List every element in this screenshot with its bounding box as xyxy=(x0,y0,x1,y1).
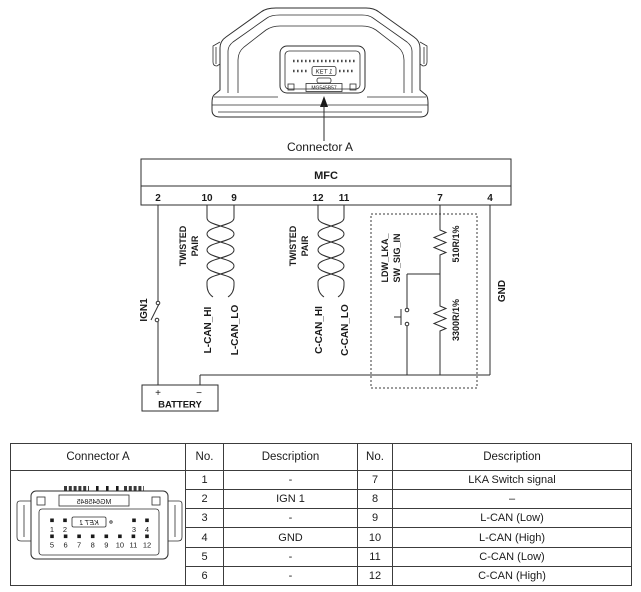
cell-desc: LKA Switch signal xyxy=(393,471,632,490)
table-row: MG645845 KET 1 xyxy=(11,471,632,490)
ccan-lo-label: C-CAN_LO xyxy=(340,304,351,356)
pin-number-9: 9 xyxy=(231,193,237,204)
resistor-510-symbol xyxy=(434,227,446,258)
cell-no: 11 xyxy=(358,547,393,566)
switch-lever xyxy=(151,304,159,320)
connector-drawing-cell: MG645845 KET 1 xyxy=(11,471,186,586)
header-description-left: Description xyxy=(224,444,358,471)
pin-label-8: 8 xyxy=(90,541,94,550)
resistor-3300-symbol xyxy=(434,303,446,334)
twisted-pair-label-line1: TWISTED xyxy=(178,225,188,266)
connector-pinout-table: Connector A No. Description No. Descript… xyxy=(10,443,632,586)
cell-no: 12 xyxy=(358,566,393,585)
twisted-pair-label-line1: TWISTED xyxy=(288,225,298,266)
cell-no: 4 xyxy=(186,528,224,547)
header-connector-a: Connector A xyxy=(11,444,186,471)
twisted-pair-ccan: TWISTED PAIR C-CAN_HI C-CAN_LO xyxy=(288,205,351,356)
pin-square xyxy=(118,535,122,539)
pin-square xyxy=(90,535,94,539)
figure-caption: Connector A xyxy=(287,140,353,154)
gnd-circuit: GND xyxy=(490,205,508,375)
cell-no: 8 xyxy=(358,490,393,509)
pin-label-2: 2 xyxy=(62,525,66,534)
battery-circuit: + − BATTERY xyxy=(142,375,490,411)
connector-a-drawing: MG645845 KET 1 xyxy=(12,471,185,582)
device-connector-recess: KET 1 MG545B57 xyxy=(280,46,365,93)
connector-inner-housing xyxy=(39,509,159,555)
ldw-lka-label-line2: SW_SIG_IN xyxy=(392,233,402,282)
twisted-wire xyxy=(207,205,234,297)
connector-tooth xyxy=(96,486,99,491)
cell-desc: - xyxy=(224,566,358,585)
cell-no: 6 xyxy=(186,566,224,585)
pin-square xyxy=(77,535,81,539)
cell-no: 1 xyxy=(186,471,224,490)
cell-desc: GND xyxy=(224,528,358,547)
resistor-510-label: 510R/1% xyxy=(451,225,461,262)
ccan-hi-label: C-CAN_HI xyxy=(314,306,325,354)
pin-label-4: 4 xyxy=(144,525,148,534)
pin-label-10: 10 xyxy=(115,541,123,550)
cell-no: 10 xyxy=(358,528,393,547)
connector-latch-right xyxy=(152,497,160,505)
battery-label: BATTERY xyxy=(158,400,202,411)
pin-label-12: 12 xyxy=(142,541,150,550)
switch-contact xyxy=(405,322,409,326)
connector-latch-left xyxy=(37,497,45,505)
twisted-wire xyxy=(318,205,344,297)
pin-label-6: 6 xyxy=(63,541,67,550)
cell-desc: - xyxy=(224,547,358,566)
cell-no: 2 xyxy=(186,490,224,509)
connector-tooth xyxy=(116,486,119,491)
ket-label: KET 1 xyxy=(316,69,333,75)
connector-pointer-arrow xyxy=(320,96,328,141)
twisted-wire xyxy=(207,205,234,297)
pin-number-11: 11 xyxy=(339,193,350,204)
twisted-pair-lcan: TWISTED PAIR L-CAN_HI L-CAN_LO xyxy=(178,205,241,355)
ket-label: KET 1 xyxy=(79,520,99,527)
pin-label-11: 11 xyxy=(129,541,137,550)
connector-tooth xyxy=(106,486,109,491)
pin-label-3: 3 xyxy=(131,525,135,534)
twisted-pair-label-line2: PAIR xyxy=(190,235,200,256)
cell-desc: - xyxy=(224,471,358,490)
pin-label-1: 1 xyxy=(49,525,53,534)
lcan-lo-label: L-CAN_LO xyxy=(230,305,241,356)
pin-square xyxy=(145,535,149,539)
cell-desc: IGN 1 xyxy=(224,490,358,509)
cell-desc: L-CAN (High) xyxy=(393,528,632,547)
pin-number-4: 4 xyxy=(487,193,493,204)
header-no-right: No. xyxy=(358,444,393,471)
pin-square xyxy=(63,535,67,539)
mirrored-part-number-group: MG645845 xyxy=(76,499,111,506)
mirrored-ket-group: KET 1 xyxy=(79,520,99,527)
cell-no: 5 xyxy=(186,547,224,566)
cell-no: 9 xyxy=(358,509,393,528)
pin-label-7: 7 xyxy=(77,541,81,550)
gnd-label: GND xyxy=(497,280,508,302)
cell-desc: L-CAN (Low) xyxy=(393,509,632,528)
mfc-box xyxy=(141,159,511,205)
pin-square xyxy=(132,519,136,523)
battery-minus-sign: − xyxy=(196,388,202,399)
cell-desc: C-CAN (High) xyxy=(393,566,632,585)
twisted-pair-label-line2: PAIR xyxy=(300,235,310,256)
table-header-row: Connector A No. Description No. Descript… xyxy=(11,444,632,471)
cell-desc: – xyxy=(393,490,632,509)
pin-square xyxy=(104,535,108,539)
pin-number-10: 10 xyxy=(201,193,213,204)
pin-number-12: 12 xyxy=(312,193,324,204)
header-no-left: No. xyxy=(186,444,224,471)
wiring-diagram-page: KET 1 MG545B57 Connector A MFC 2 10 9 xyxy=(0,0,641,592)
twisted-wire xyxy=(318,205,344,297)
pin-square xyxy=(131,535,135,539)
battery-plus-sign: + xyxy=(155,388,161,399)
pin-label-5: 5 xyxy=(49,541,53,550)
header-description-right: Description xyxy=(393,444,632,471)
mfc-title: MFC xyxy=(314,170,338,182)
switch-contact xyxy=(155,318,159,322)
mfc-schematic: MFC 2 10 9 12 11 7 4 IGN1 TWISTED xyxy=(139,159,511,411)
device-part-number: MG545B57 xyxy=(311,86,337,92)
cell-no: 7 xyxy=(358,471,393,490)
pin-number-2: 2 xyxy=(155,193,161,204)
ldw-lka-label-line1: LDW_LKA_ xyxy=(380,233,390,283)
ign-label: IGN1 xyxy=(139,298,150,322)
connector-part-number: MG645845 xyxy=(76,499,111,506)
pin-square xyxy=(145,519,149,523)
cell-desc: C-CAN (Low) xyxy=(393,547,632,566)
cell-no: 3 xyxy=(186,509,224,528)
device-right-tab xyxy=(420,42,427,66)
ign-circuit: IGN1 xyxy=(139,205,160,385)
wiring-diagram-figure: KET 1 MG545B57 Connector A MFC 2 10 9 xyxy=(0,0,641,434)
switch-contact xyxy=(405,308,409,312)
pin-square xyxy=(63,519,67,523)
pin-number-7: 7 xyxy=(437,193,443,204)
cell-desc: - xyxy=(224,509,358,528)
resistor-3300-label: 3300R/1% xyxy=(451,299,461,341)
lka-switch-enclosure: LDW_LKA_ SW_SIG_IN 510R/1% 3300R/1% xyxy=(371,205,477,388)
camera-unit-illustration: KET 1 MG545B57 Connector A xyxy=(212,8,428,154)
keying-dot xyxy=(109,521,111,523)
device-left-tab xyxy=(213,42,220,66)
pin-square xyxy=(50,519,54,523)
pin-square xyxy=(50,535,54,539)
lcan-hi-label: L-CAN_HI xyxy=(203,306,214,353)
pin-label-9: 9 xyxy=(104,541,108,550)
